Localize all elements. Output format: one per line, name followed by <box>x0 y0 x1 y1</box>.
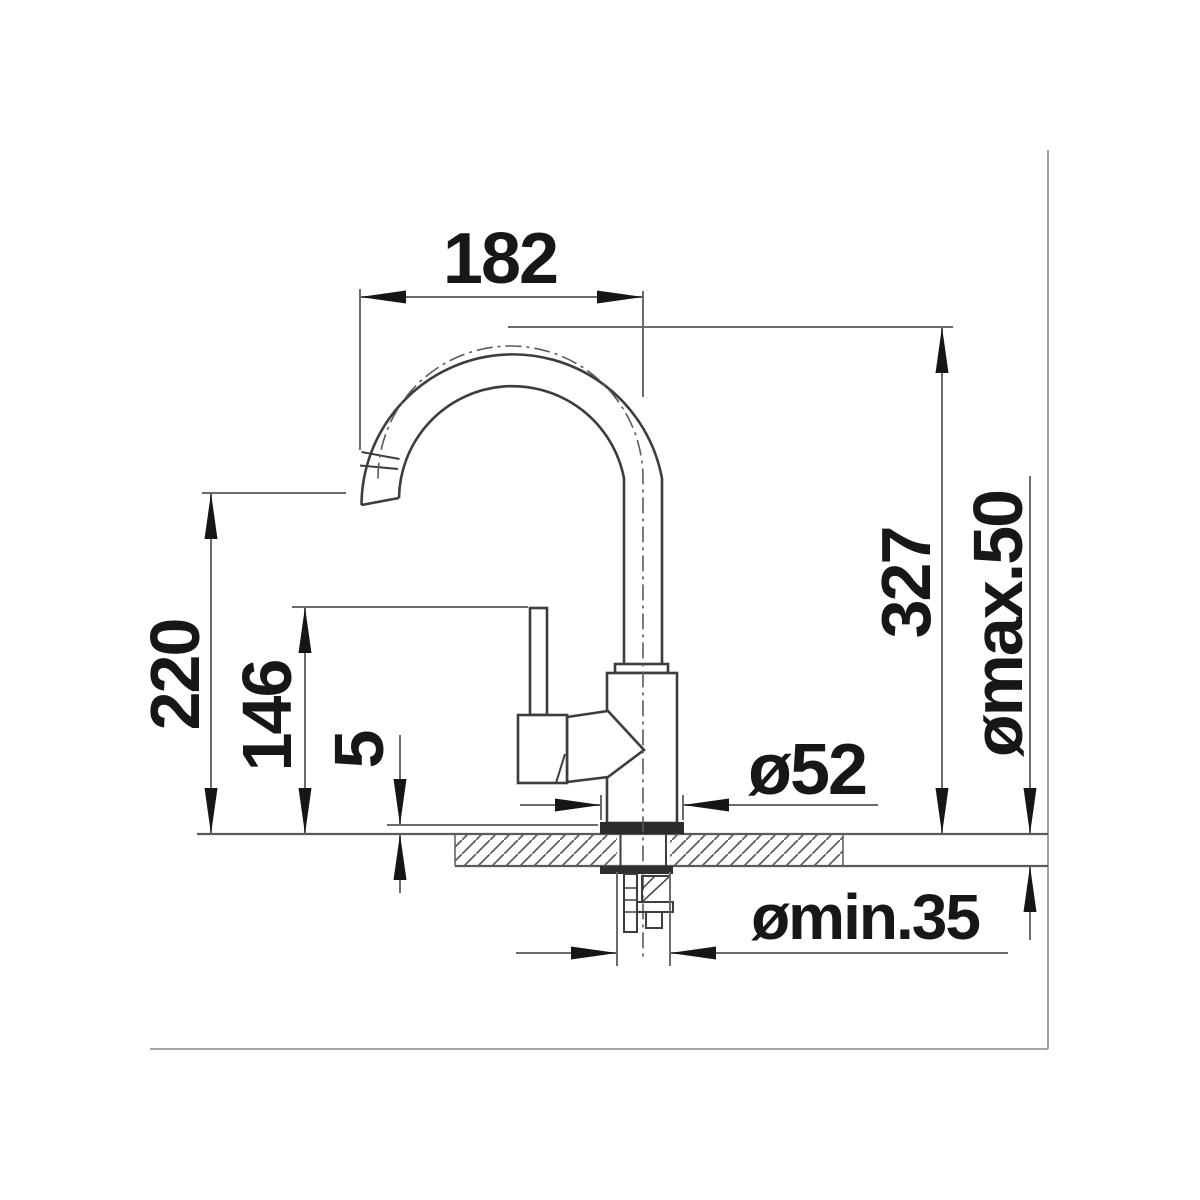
washer <box>600 866 673 874</box>
technical-drawing: 182 327 ømax.50 220 146 5 ø52 ømin.35 <box>0 0 1200 1200</box>
hose-end <box>646 912 662 928</box>
countertop-section <box>197 834 1048 866</box>
mounting-hardware <box>600 866 673 932</box>
dim-label-outlet-height: 220 <box>140 620 210 731</box>
dim-label-plate-height: 5 <box>324 732 394 769</box>
threaded-stud <box>624 874 637 932</box>
spout-inner-edge <box>399 386 624 664</box>
counter-hatch-right <box>670 834 843 866</box>
dim-182 <box>360 289 643 450</box>
dim-label-spout-reach: 182 <box>443 223 557 295</box>
dim-label-clamp-range: ømax.50 <box>963 491 1033 757</box>
spout-collar <box>615 664 668 673</box>
dim-label-total-height: 327 <box>871 528 941 639</box>
dim-label-handle-height: 146 <box>232 661 302 772</box>
base-flange <box>600 822 684 834</box>
dim-label-hole-diameter-min: ømin.35 <box>751 885 979 949</box>
counter-hatch-left <box>455 834 617 866</box>
handle-lever-rod <box>530 608 547 715</box>
dim-146 <box>292 607 528 834</box>
spout-tip-face <box>362 498 400 505</box>
dim-label-base-diameter: ø52 <box>748 734 866 806</box>
